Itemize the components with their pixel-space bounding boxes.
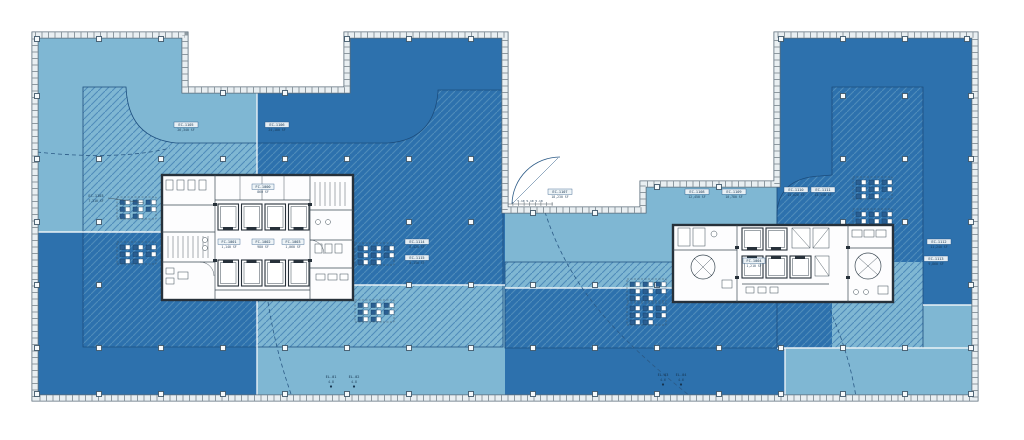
svg-text:EC-1103: EC-1103 — [88, 194, 103, 198]
grid-column-marker — [159, 157, 164, 162]
grid-column-marker — [97, 392, 102, 397]
svg-text:EC-1114: EC-1114 — [409, 240, 424, 244]
svg-text:EL-04: EL-04 — [676, 373, 687, 377]
svg-text:EC-1105: EC-1105 — [178, 123, 193, 127]
svg-text:980 SF: 980 SF — [257, 245, 269, 249]
grid-column-marker — [469, 392, 474, 397]
grid-column-marker — [97, 157, 102, 162]
grid-column-marker — [903, 94, 908, 99]
grid-column-marker — [283, 157, 288, 162]
grid-column-marker — [965, 37, 970, 42]
grid-column-marker — [159, 37, 164, 42]
east-core — [673, 225, 893, 302]
svg-text:8,150 SF: 8,150 SF — [409, 261, 424, 265]
grid-column-marker — [97, 220, 102, 225]
grid-column-marker — [159, 346, 164, 351]
svg-text:EC-1110: EC-1110 — [788, 188, 803, 192]
grid-column-marker — [407, 283, 412, 288]
svg-text:EC-1109: EC-1109 — [726, 190, 741, 194]
grid-column-marker — [841, 392, 846, 397]
grid-column-marker — [97, 283, 102, 288]
svg-text:EC-1112: EC-1112 — [931, 240, 946, 244]
grid-column-marker — [97, 346, 102, 351]
suite-label: EC-110812,450 SF — [685, 189, 709, 199]
svg-text:26,340 SF: 26,340 SF — [177, 128, 194, 132]
grid-column-marker — [35, 157, 40, 162]
svg-text:EC-1115: EC-1115 — [409, 256, 424, 260]
grid-column-marker — [593, 346, 598, 351]
svg-text:EC-1106: EC-1106 — [269, 123, 284, 127]
grid-column-marker — [407, 392, 412, 397]
grid-column-marker — [655, 185, 660, 190]
grid-column-marker — [779, 346, 784, 351]
grid-column-marker — [841, 220, 846, 225]
svg-text:FC-1002: FC-1002 — [255, 240, 270, 244]
grid-column-marker — [345, 37, 350, 42]
grid-column-marker — [407, 346, 412, 351]
svg-text:EC-1111: EC-1111 — [815, 188, 830, 192]
grid-column-marker — [35, 37, 40, 42]
suite-label: EC-110624,180 SF — [265, 122, 289, 132]
grid-column-marker — [221, 392, 226, 397]
svg-text:FC-1004: FC-1004 — [746, 259, 761, 263]
grid-column-marker — [531, 283, 536, 288]
grid-column-marker — [407, 157, 412, 162]
grid-column-marker — [969, 157, 974, 162]
svg-text:FC-1003: FC-1003 — [285, 240, 300, 244]
grid-column-marker — [35, 346, 40, 351]
grid-column-marker — [407, 220, 412, 225]
svg-text:4.6: 4.6 — [660, 378, 666, 382]
grid-column-marker — [655, 392, 660, 397]
grid-column-marker — [35, 220, 40, 225]
grid-column-marker — [903, 157, 908, 162]
svg-text:10,780 SF: 10,780 SF — [725, 195, 742, 199]
svg-text:860 SF: 860 SF — [257, 190, 269, 194]
grid-column-marker — [717, 346, 722, 351]
grid-column-marker — [717, 185, 722, 190]
grid-column-marker — [779, 37, 784, 42]
dimension-strip: 5.10 5.10 5.10 — [507, 199, 553, 204]
svg-text:1,210 SF: 1,210 SF — [746, 264, 761, 268]
grid-column-marker — [469, 220, 474, 225]
suite-label: EC-110910,780 SF — [722, 189, 746, 199]
suite-label: EC-110526,340 SF — [174, 122, 198, 132]
grid-column-marker — [841, 157, 846, 162]
grid-column-marker — [345, 392, 350, 397]
grid-column-marker — [221, 91, 226, 96]
svg-text:EC-1107: EC-1107 — [552, 190, 567, 194]
grid-column-marker — [969, 283, 974, 288]
floor-plan-drawing: 5.10 5.10 5.10 — [0, 0, 1024, 440]
grid-column-marker — [283, 392, 288, 397]
grid-column-marker — [35, 283, 40, 288]
grid-column-marker — [969, 346, 974, 351]
grid-column-marker — [717, 392, 722, 397]
zone-east-south-light — [785, 348, 975, 398]
svg-text:EC-1113: EC-1113 — [928, 257, 943, 261]
grid-column-marker — [159, 392, 164, 397]
svg-text:EL-01: EL-01 — [326, 375, 337, 379]
grid-column-marker — [469, 346, 474, 351]
svg-text:EL-02: EL-02 — [349, 375, 360, 379]
suite-label: EC-110718,230 SF — [548, 189, 572, 199]
grid-column-marker — [841, 346, 846, 351]
suite-label: EC-111113,910 SF — [811, 187, 835, 197]
grid-column-marker — [779, 392, 784, 397]
grid-column-marker — [903, 37, 908, 42]
grid-column-marker — [841, 94, 846, 99]
svg-text:FC-1000: FC-1000 — [255, 185, 270, 189]
zone-east-column-light — [923, 305, 975, 348]
grid-column-marker — [531, 346, 536, 351]
grid-column-marker — [283, 91, 288, 96]
grid-column-marker — [969, 94, 974, 99]
svg-text:1,060 SF: 1,060 SF — [285, 245, 300, 249]
grid-column-marker — [903, 220, 908, 225]
svg-text:8,420 SF: 8,420 SF — [409, 245, 424, 249]
grid-column-marker — [35, 392, 40, 397]
grid-column-marker — [407, 37, 412, 42]
svg-text:15,620 SF: 15,620 SF — [787, 193, 804, 197]
svg-text:EL-03: EL-03 — [658, 373, 669, 377]
grid-column-marker — [97, 37, 102, 42]
grid-column-marker — [969, 392, 974, 397]
grid-column-marker — [903, 392, 908, 397]
grid-column-marker — [841, 37, 846, 42]
grid-column-marker — [345, 157, 350, 162]
svg-text:EC-1108: EC-1108 — [689, 190, 704, 194]
grid-column-marker — [593, 283, 598, 288]
grid-column-marker — [531, 211, 536, 216]
svg-text:13,910 SF: 13,910 SF — [814, 193, 831, 197]
dimension-text: 5.10 5.10 5.10 — [517, 199, 542, 203]
svg-text:11,240 SF: 11,240 SF — [930, 245, 947, 249]
svg-text:FC-1001: FC-1001 — [221, 240, 236, 244]
grid-column-marker — [469, 157, 474, 162]
grid-column-marker — [969, 220, 974, 225]
grid-column-marker — [469, 37, 474, 42]
svg-text:24,180 SF: 24,180 SF — [268, 128, 285, 132]
grid-column-marker — [655, 346, 660, 351]
grid-column-marker — [593, 211, 598, 216]
suite-label: EC-111015,620 SF — [784, 187, 808, 197]
grid-column-marker — [221, 157, 226, 162]
svg-text:12,450 SF: 12,450 SF — [688, 195, 705, 199]
svg-text:7,310 SF: 7,310 SF — [88, 199, 103, 203]
svg-text:4.6: 4.6 — [678, 378, 684, 382]
grid-column-marker — [221, 346, 226, 351]
grid-column-marker — [283, 346, 288, 351]
suite-label: EC-111211,240 SF — [927, 239, 951, 249]
svg-text:1,140 SF: 1,140 SF — [221, 245, 236, 249]
svg-text:4.8: 4.8 — [351, 380, 357, 384]
grid-column-marker — [903, 346, 908, 351]
grid-column-marker — [531, 392, 536, 397]
grid-column-marker — [345, 346, 350, 351]
svg-text:18,230 SF: 18,230 SF — [551, 195, 568, 199]
floor-plan-canvas: 5.10 5.10 5.10 — [0, 0, 1024, 440]
svg-text:4.8: 4.8 — [328, 380, 334, 384]
grid-column-marker — [469, 283, 474, 288]
svg-text:9,860 SF: 9,860 SF — [928, 262, 943, 266]
grid-column-marker — [35, 94, 40, 99]
grid-column-marker — [593, 392, 598, 397]
